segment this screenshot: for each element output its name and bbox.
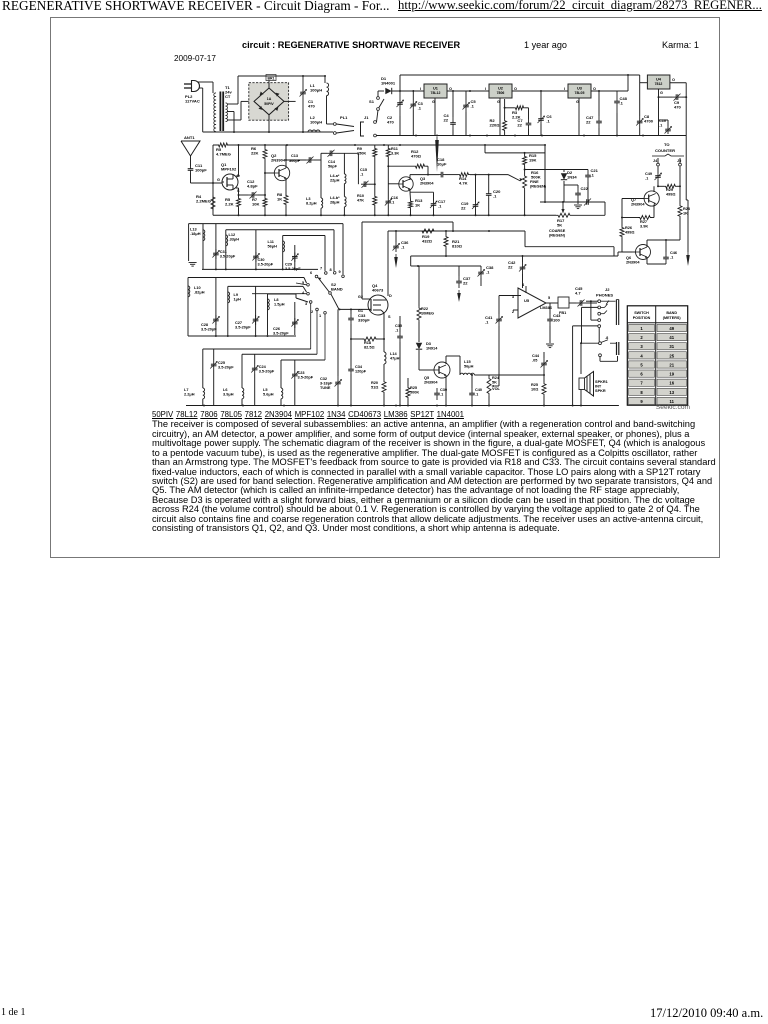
svg-text:5: 5 <box>548 296 551 300</box>
svg-text:3.9μH: 3.9μH <box>223 392 234 396</box>
svg-text:56μH: 56μH <box>268 244 278 248</box>
svg-text:O: O <box>672 78 675 82</box>
svg-text:3.5-20pF: 3.5-20pF <box>285 267 301 271</box>
svg-text:3.5-20pF: 3.5-20pF <box>273 331 289 335</box>
svg-text:2N3904: 2N3904 <box>420 181 434 185</box>
svg-text:.1: .1 <box>391 200 395 204</box>
svg-text:470: 470 <box>387 120 395 125</box>
svg-text:500K: 500K <box>410 390 419 394</box>
svg-text:22K: 22K <box>251 151 259 156</box>
svg-text:.1: .1 <box>591 173 595 178</box>
svg-text:1μH: 1μH <box>234 297 241 301</box>
svg-text:41: 41 <box>669 335 674 340</box>
svg-text:4.7: 4.7 <box>575 291 581 296</box>
svg-text:G: G <box>217 178 220 182</box>
svg-text:22μH: 22μH <box>330 178 340 182</box>
svg-text:.1: .1 <box>418 106 422 111</box>
svg-text:SPKR: SPKR <box>595 389 606 393</box>
svg-text:G: G <box>660 91 663 95</box>
svg-text:100: 100 <box>553 318 561 323</box>
svg-text:(REGEN): (REGEN) <box>549 233 566 237</box>
svg-text:MPF102: MPF102 <box>221 167 237 172</box>
svg-text:.1: .1 <box>475 392 479 396</box>
svg-text:.1: .1 <box>670 255 674 259</box>
svg-text:.1: .1 <box>659 123 663 127</box>
svg-text:J1: J1 <box>364 115 369 120</box>
svg-text:22: 22 <box>444 118 449 123</box>
svg-text:.05: .05 <box>532 358 538 362</box>
svg-text:10MEG: 10MEG <box>421 311 434 315</box>
svg-text:.8: .8 <box>605 336 609 340</box>
svg-text:51Ω: 51Ω <box>371 385 378 389</box>
svg-text:330pF: 330pF <box>358 318 370 323</box>
svg-text:56pF: 56pF <box>328 164 338 168</box>
svg-text:.1: .1 <box>493 194 497 199</box>
svg-text:10μF: 10μF <box>437 162 447 167</box>
svg-text:22: 22 <box>463 281 468 286</box>
svg-text:2N3904: 2N3904 <box>271 158 286 163</box>
svg-text:TUNE: TUNE <box>320 386 331 390</box>
svg-text:1K: 1K <box>415 203 420 208</box>
svg-text:16: 16 <box>669 381 674 386</box>
svg-text:5K: 5K <box>557 223 562 228</box>
svg-text:BAND: BAND <box>331 287 343 292</box>
svg-text:21: 21 <box>669 362 674 367</box>
svg-text:499Ω: 499Ω <box>666 192 676 196</box>
svg-text:3.5-20pF: 3.5-20pF <box>235 325 251 329</box>
svg-text:.1: .1 <box>645 176 649 180</box>
svg-text:220Ω: 220Ω <box>490 123 501 128</box>
svg-text:22: 22 <box>586 120 591 125</box>
svg-text:BAND: BAND <box>666 311 677 315</box>
svg-text:VOL: VOL <box>492 387 501 391</box>
svg-text:3.5-20pF: 3.5-20pF <box>201 327 217 331</box>
svg-text:3.5-20pF: 3.5-20pF <box>298 375 314 379</box>
svg-text:13: 13 <box>669 390 674 395</box>
svg-text:120pF: 120pF <box>355 369 367 373</box>
svg-text:.18μH: .18μH <box>190 232 201 236</box>
svg-text:U4: U4 <box>656 78 662 82</box>
svg-text:9: 9 <box>339 270 341 274</box>
svg-text:.1: .1 <box>620 101 624 106</box>
svg-text:.33μH: .33μH <box>229 237 240 241</box>
svg-text:.82μH: .82μH <box>194 290 205 294</box>
svg-text:INT: INT <box>595 384 602 388</box>
svg-text:SWITCH: SWITCH <box>634 311 649 315</box>
svg-text:47K: 47K <box>357 198 364 202</box>
svg-text:8.2μH: 8.2μH <box>306 201 317 205</box>
svg-text:3.5-20pF: 3.5-20pF <box>259 369 275 373</box>
svg-text:2N3904: 2N3904 <box>626 260 640 264</box>
svg-text:19: 19 <box>669 372 674 377</box>
svg-text:O: O <box>593 87 596 91</box>
svg-text:O: O <box>514 87 517 91</box>
svg-text:40673: 40673 <box>372 288 384 293</box>
svg-text:.1: .1 <box>485 320 489 325</box>
svg-text:C22: C22 <box>581 186 589 191</box>
svg-text:BR1: BR1 <box>267 76 274 80</box>
svg-text:4.8pF: 4.8pF <box>247 184 258 189</box>
svg-text:300pF: 300pF <box>289 159 301 163</box>
svg-text:2N3904: 2N3904 <box>631 202 645 206</box>
svg-text:1A: 1A <box>267 97 272 101</box>
svg-text:47μH: 47μH <box>390 356 400 360</box>
svg-text:CT: CT <box>225 94 231 99</box>
svg-text:J2: J2 <box>605 287 610 292</box>
svg-text:J4: J4 <box>653 159 658 163</box>
svg-text:I: I <box>420 87 421 91</box>
svg-text:500K: 500K <box>531 175 541 180</box>
svg-text:.1: .1 <box>395 328 399 332</box>
svg-text:1.5μH: 1.5μH <box>274 302 285 306</box>
svg-text:31: 31 <box>669 344 674 349</box>
svg-text:3.5-20pF: 3.5-20pF <box>258 262 274 266</box>
svg-text:3: 3 <box>512 295 514 299</box>
svg-text:PL1: PL1 <box>340 115 348 120</box>
svg-text:3.9K: 3.9K <box>640 224 648 228</box>
svg-text:S: S <box>388 315 391 319</box>
svg-text:810Ω: 810Ω <box>452 244 463 249</box>
svg-text:4: 4 <box>302 291 305 295</box>
svg-text:3.5-20pF: 3.5-20pF <box>220 254 236 258</box>
svg-text:78L12: 78L12 <box>431 91 441 95</box>
svg-text:50PIV: 50PIV <box>264 102 274 106</box>
svg-text:D: D <box>389 294 392 298</box>
svg-text:78L05: 78L05 <box>575 91 585 95</box>
svg-text:56μH: 56μH <box>464 364 474 368</box>
svg-text:100μH: 100μH <box>310 88 322 93</box>
svg-text:470: 470 <box>308 104 316 109</box>
svg-text:150K: 150K <box>357 151 366 155</box>
svg-text:.1: .1 <box>471 104 475 109</box>
svg-text:7806: 7806 <box>497 91 505 95</box>
svg-text:19K: 19K <box>529 158 537 163</box>
svg-text:.1: .1 <box>438 204 442 209</box>
svg-text:49: 49 <box>669 326 674 331</box>
svg-text:1N34: 1N34 <box>567 175 577 180</box>
svg-text:2: 2 <box>311 310 313 314</box>
svg-text:10Ω: 10Ω <box>531 387 538 391</box>
svg-text:.1: .1 <box>546 119 550 124</box>
svg-text:2N3904: 2N3904 <box>424 380 438 384</box>
svg-text:1K: 1K <box>683 211 688 215</box>
svg-text:(METERS): (METERS) <box>663 316 682 320</box>
svg-text:22: 22 <box>517 123 522 128</box>
svg-text:1: 1 <box>319 314 322 318</box>
svg-text:O: O <box>449 87 452 91</box>
svg-text:117VAC: 117VAC <box>185 99 200 104</box>
svg-text:499Ω: 499Ω <box>625 230 635 234</box>
svg-text:S1: S1 <box>369 99 375 104</box>
svg-text:Seekic.com: Seekic.com <box>656 404 691 411</box>
svg-text:2: 2 <box>512 310 514 314</box>
svg-text:U3: U3 <box>577 87 582 91</box>
svg-text:I: I <box>564 87 565 91</box>
svg-text:4.7MEG: 4.7MEG <box>216 152 231 157</box>
svg-text:3.3K: 3.3K <box>391 151 399 155</box>
svg-text:470: 470 <box>674 105 682 110</box>
svg-text:25: 25 <box>669 353 674 358</box>
svg-text:470Ω: 470Ω <box>411 154 422 159</box>
svg-text:5.6μH: 5.6μH <box>263 392 274 396</box>
svg-text:PHONES: PHONES <box>596 293 613 298</box>
svg-text:28μH: 28μH <box>330 200 340 204</box>
svg-text:4: 4 <box>522 283 525 287</box>
svg-text:.1: .1 <box>486 270 490 275</box>
svg-text:7812: 7812 <box>655 82 663 86</box>
svg-text:C13: C13 <box>291 154 298 158</box>
svg-text:432Ω: 432Ω <box>422 239 433 244</box>
svg-text:100μH: 100μH <box>310 120 322 125</box>
svg-text:.1: .1 <box>440 392 444 396</box>
svg-text:2.2μH: 2.2μH <box>184 392 195 396</box>
svg-text:COUNTER: COUNTER <box>655 148 675 153</box>
svg-text:100pF: 100pF <box>195 168 207 173</box>
svg-text:.1: .1 <box>360 172 364 176</box>
svg-text:ANT1: ANT1 <box>184 135 195 140</box>
svg-text:U5: U5 <box>524 298 530 303</box>
svg-text:8: 8 <box>330 268 333 272</box>
svg-text:6: 6 <box>310 271 312 275</box>
svg-text:82.5Ω: 82.5Ω <box>364 345 375 349</box>
svg-text:1N914: 1N914 <box>426 346 438 350</box>
svg-text:10K: 10K <box>252 202 260 207</box>
svg-text:2.2MEG: 2.2MEG <box>196 199 211 204</box>
svg-text:I: I <box>485 87 486 91</box>
svg-text:3: 3 <box>305 302 307 306</box>
svg-text:(REGEN): (REGEN) <box>530 184 547 188</box>
svg-text:POSITION: POSITION <box>633 316 651 320</box>
svg-text:U1: U1 <box>433 87 439 91</box>
svg-text:5K: 5K <box>492 380 497 384</box>
svg-text:SPKR1: SPKR1 <box>595 380 609 384</box>
svg-text:3.5-20pF: 3.5-20pF <box>218 365 234 369</box>
svg-text:3-18pF: 3-18pF <box>320 381 333 385</box>
svg-text:4.7K: 4.7K <box>459 181 468 186</box>
svg-text:4700: 4700 <box>644 119 654 124</box>
svg-text:22: 22 <box>508 265 513 270</box>
svg-text:1K: 1K <box>277 197 282 202</box>
svg-text:TO: TO <box>664 142 670 147</box>
svg-text:22: 22 <box>461 206 466 211</box>
svg-text:U2: U2 <box>498 87 503 91</box>
svg-text:1N4001: 1N4001 <box>381 81 396 86</box>
svg-text:.1: .1 <box>401 245 405 250</box>
svg-text:7: 7 <box>320 267 322 271</box>
svg-text:2.2K: 2.2K <box>225 202 234 207</box>
